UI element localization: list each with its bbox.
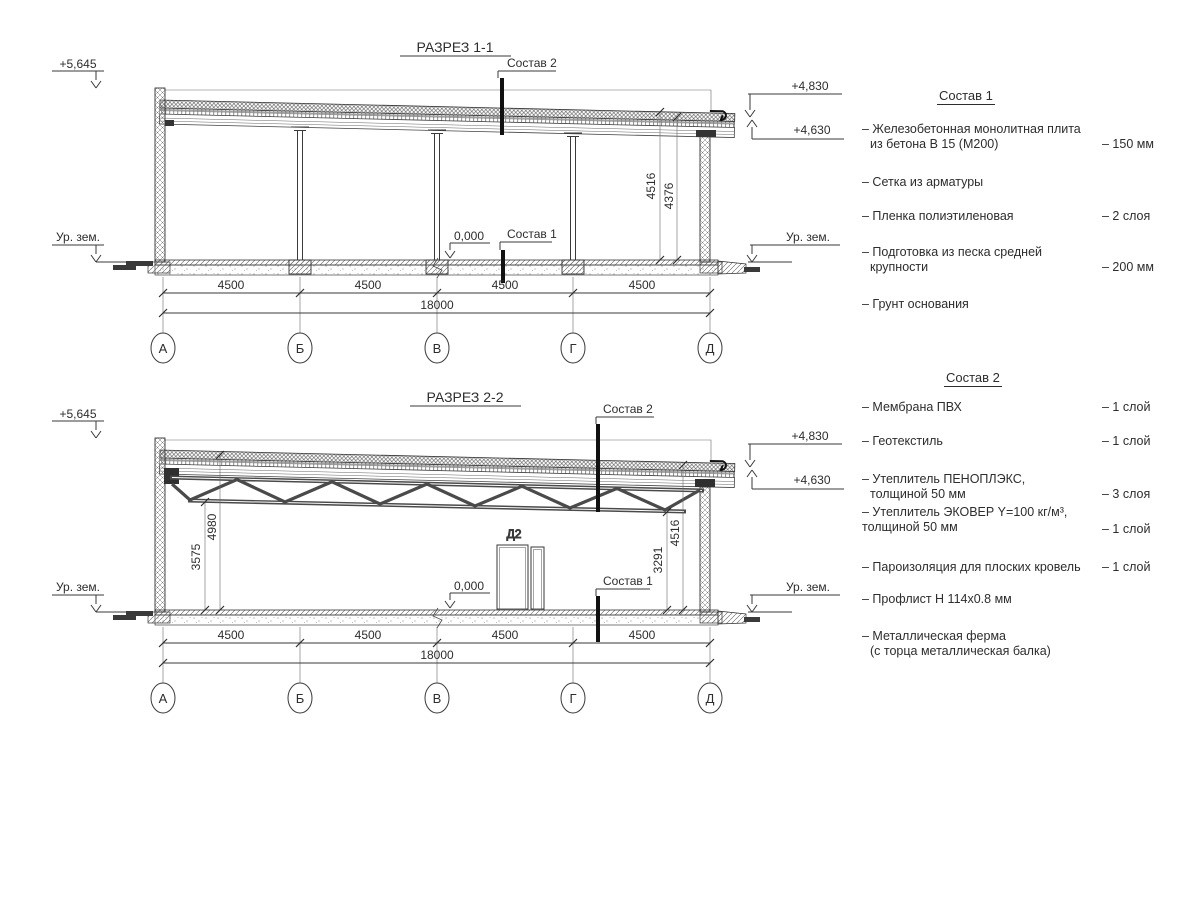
svg-text:3575: 3575 [189, 543, 203, 570]
list-item: – Мембрана ПВХ [862, 400, 962, 415]
svg-text:Г: Г [569, 341, 576, 356]
axis-bubbles-1: А Б В Г Д [151, 333, 722, 363]
door-label: Д2 [507, 527, 522, 541]
svg-text:4500: 4500 [629, 628, 656, 642]
svg-text:В: В [433, 691, 442, 706]
list-item: – Геотекстиль [862, 434, 943, 449]
right-wall-cap-2 [695, 479, 715, 487]
svg-text:4500: 4500 [629, 278, 656, 292]
svg-text:4500: 4500 [355, 628, 382, 642]
left-wall-1 [155, 88, 165, 262]
section-2-title: РАЗРЕЗ 2-2 [427, 389, 504, 405]
svg-text:+5,645: +5,645 [59, 57, 96, 71]
elev-mark-4630-1: +4,630 [747, 120, 844, 139]
svg-text:Состав 2: Состав 2 [603, 402, 653, 416]
item-value: – 1 слой [1102, 560, 1150, 574]
svg-text:4500: 4500 [218, 278, 245, 292]
right-wall-1 [700, 136, 710, 262]
ground-mark-right-1: Ур. зем. [747, 230, 840, 262]
item-value: – 200 мм [1102, 260, 1154, 274]
svg-text:+5,645: +5,645 [59, 407, 96, 421]
svg-text:Состав 1: Состав 1 [603, 574, 653, 588]
list-item: – Металлическая ферма (с торца металличе… [862, 629, 1051, 659]
svg-text:А: А [159, 691, 168, 706]
composition1-heading: Состав 1 [937, 88, 995, 103]
item-value: – 3 слоя [1102, 487, 1150, 501]
list-item: – Подготовка из песка средней крупности [862, 245, 1042, 275]
svg-text:0,000: 0,000 [454, 579, 484, 593]
elev-mark-4630-2: +4,630 [747, 470, 844, 489]
section-2-2: РАЗРЕЗ 2-2 Д2 [52, 389, 844, 713]
drawing-sheet: РАЗРЕЗ 1-1 [0, 0, 1200, 900]
svg-text:Ур. зем.: Ур. зем. [56, 230, 100, 244]
floor-slab-1 [113, 258, 760, 278]
svg-text:Ур. зем.: Ур. зем. [786, 580, 830, 594]
list-item: – Железобетонная монолитная плита из бет… [862, 122, 1081, 152]
svg-text:Б: Б [296, 341, 305, 356]
right-wall-cap-1 [696, 130, 716, 137]
elev-mark-5645-2: +5,645 [52, 407, 104, 438]
list-item: – Пароизоляция для плоских кровель [862, 560, 1081, 575]
svg-text:18000: 18000 [420, 648, 454, 662]
composition2-heading: Состав 2 [944, 370, 1002, 385]
ground-mark-left-1: Ур. зем. [52, 230, 104, 262]
section-1-title: РАЗРЕЗ 1-1 [417, 39, 494, 55]
svg-text:4500: 4500 [492, 628, 519, 642]
svg-text:А: А [159, 341, 168, 356]
svg-text:4516: 4516 [668, 519, 682, 546]
dim-lines-1: 4500 4500 4500 4500 18000 [159, 277, 714, 333]
list-item: – Профлист Н 114х0.8 мм [862, 592, 1012, 607]
item-value: – 1 слой [1102, 434, 1150, 448]
svg-text:Ур. зем.: Ур. зем. [56, 580, 100, 594]
svg-text:Б: Б [296, 691, 305, 706]
zero-level-mark-1: 0,000 [445, 229, 490, 258]
svg-text:18000: 18000 [420, 298, 454, 312]
svg-text:0,000: 0,000 [454, 229, 484, 243]
ground-mark-left-2: Ур. зем. [52, 580, 104, 612]
list-item: – Сетка из арматуры [862, 175, 983, 190]
svg-text:Ур. зем.: Ур. зем. [786, 230, 830, 244]
item-value: – 1 слой [1102, 522, 1150, 536]
roof-slab-2 [159, 448, 734, 488]
svg-text:4980: 4980 [205, 513, 219, 540]
section-1-1: РАЗРЕЗ 1-1 [52, 39, 844, 363]
axis-bubbles-2: А Б В Г Д [151, 683, 722, 713]
composition-panel: Состав 1 – Железобетонная монолитная пли… [852, 0, 1182, 700]
svg-text:Д: Д [706, 691, 715, 706]
elev-mark-4830-2: +4,830 [745, 429, 842, 467]
item-value: – 2 слоя [1102, 209, 1150, 223]
dim-lines-2: 4500 4500 4500 4500 18000 [159, 627, 714, 683]
svg-text:+4,830: +4,830 [791, 79, 828, 93]
svg-text:3291: 3291 [651, 546, 665, 573]
svg-text:+4,630: +4,630 [793, 473, 830, 487]
svg-text:+4,630: +4,630 [793, 123, 830, 137]
svg-text:4500: 4500 [355, 278, 382, 292]
svg-text:4516: 4516 [644, 172, 658, 199]
list-item: – Утеплитель ЭКОВЕР Y=100 кг/м³, толщино… [862, 505, 1067, 535]
left-wall-2 [155, 438, 165, 612]
sostav2-marker-2: Состав 2 [596, 402, 654, 512]
svg-text:Г: Г [569, 691, 576, 706]
roof-slab-1 [159, 98, 734, 138]
zero-level-mark-2: 0,000 [445, 579, 490, 608]
svg-text:Д: Д [706, 341, 715, 356]
svg-text:Состав 2: Состав 2 [507, 56, 557, 70]
floor-slab-2 [113, 608, 760, 628]
list-item: – Грунт основания [862, 297, 969, 312]
svg-text:В: В [433, 341, 442, 356]
elev-mark-4830-1: +4,830 [745, 79, 842, 117]
item-value: – 150 мм [1102, 137, 1154, 151]
door-d2: Д2 [497, 527, 544, 609]
left-bearing-1 [165, 120, 174, 126]
svg-text:+4,830: +4,830 [791, 429, 828, 443]
svg-text:4376: 4376 [662, 182, 676, 209]
svg-text:Состав 1: Состав 1 [507, 227, 557, 241]
right-wall-2 [700, 487, 710, 612]
ground-mark-right-2: Ур. зем. [747, 580, 840, 612]
list-item: – Пленка полиэтиленовая [862, 209, 1014, 224]
svg-text:4500: 4500 [492, 278, 519, 292]
item-value: – 1 слой [1102, 400, 1150, 414]
svg-text:4500: 4500 [218, 628, 245, 642]
elev-mark-5645-1: +5,645 [52, 57, 104, 88]
list-item: – Утеплитель ПЕНОПЛЭКС, толщиной 50 мм [862, 472, 1025, 502]
